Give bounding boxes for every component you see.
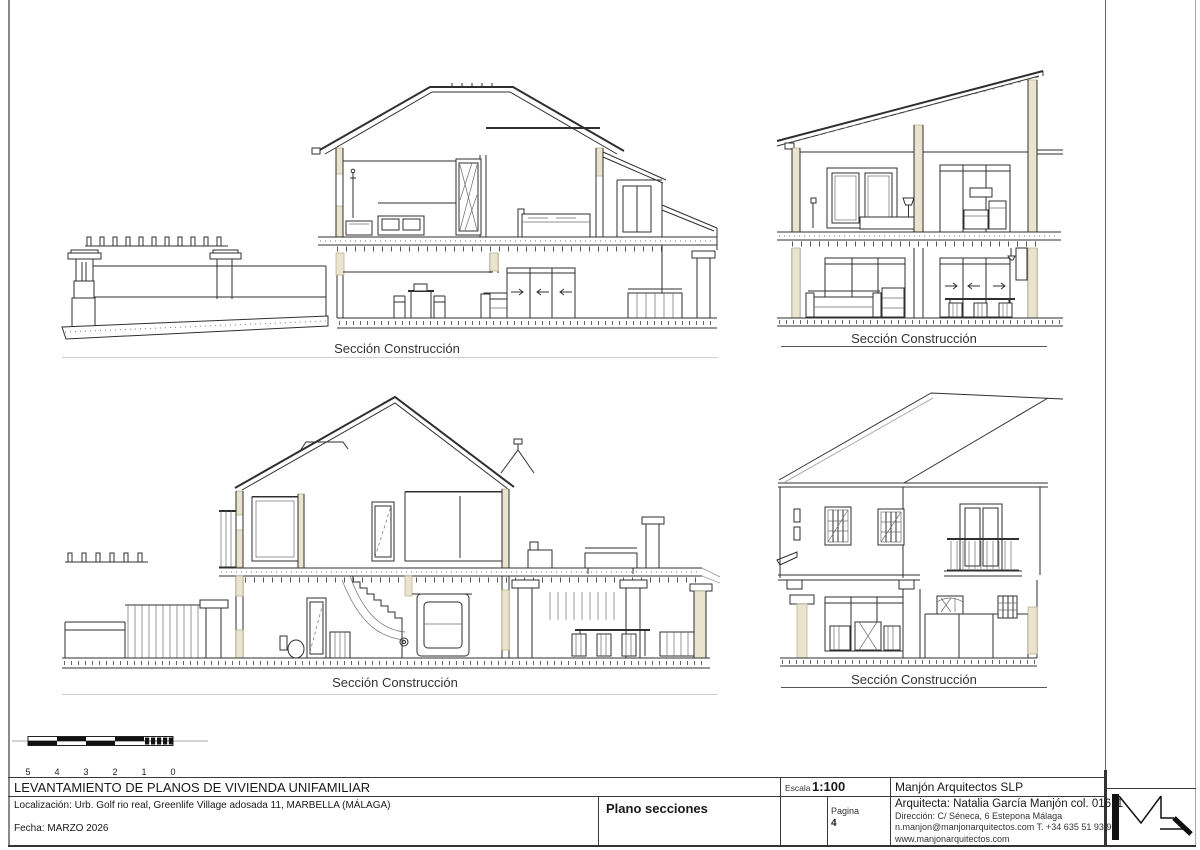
scale-number-2: 2 xyxy=(112,767,117,777)
titleblock-top-line xyxy=(8,777,1105,778)
section-bottom-right-linework xyxy=(775,390,1065,700)
address-text: Dirección: C/ Séneca, 6 Estepona Málaga xyxy=(895,811,1062,821)
section-drawing-bottom-right xyxy=(775,390,1065,700)
sheet-name: Plano secciones xyxy=(606,801,708,816)
frame-left-border xyxy=(8,0,10,847)
scale-number-5: 5 xyxy=(25,767,30,777)
section-top-left-linework xyxy=(60,60,720,360)
m-zigzag-logo-icon xyxy=(1105,785,1197,845)
titleblock-vline-3 xyxy=(827,796,828,845)
divider-top-left xyxy=(62,357,718,358)
scale-number-4: 4 xyxy=(54,767,59,777)
section-bottom-left-linework xyxy=(60,390,720,700)
website-text: www.manjonarquitectos.com xyxy=(895,834,1010,844)
titleblock-vline-1 xyxy=(598,796,599,845)
titleblock-mid-line xyxy=(8,796,1105,797)
architect-text: Arquitecta: Natalia García Manjón col. 0… xyxy=(895,798,1123,810)
section-label-bottom-right: Sección Construcción xyxy=(851,672,977,687)
section-top-right-linework xyxy=(775,60,1065,360)
section-drawing-top-left xyxy=(60,60,720,360)
titleblock-vline-4 xyxy=(890,777,891,845)
firm-logo xyxy=(1105,785,1197,845)
section-label-top-left: Sección Construcción xyxy=(334,341,460,356)
scale-label: Escala xyxy=(785,783,811,793)
drawing-sheet: Sección Construcción Sección Construcció… xyxy=(0,0,1200,850)
section-label-bottom-left: Sección Construcción xyxy=(332,675,458,690)
scale-number-3: 3 xyxy=(83,767,88,777)
frame-bottom-border xyxy=(8,845,1196,847)
frame-divider-vertical xyxy=(1105,0,1106,847)
date-text: Fecha: MARZO 2026 xyxy=(14,823,108,834)
section-drawing-top-right xyxy=(775,60,1065,360)
scale-bar-graphic xyxy=(10,727,210,749)
project-title: LEVANTAMIENTO DE PLANOS DE VIVIENDA UNIF… xyxy=(14,780,370,795)
contact-text: n.manjon@manjonarquitectos.com T. +34 63… xyxy=(895,822,1116,832)
section-drawing-bottom-left xyxy=(60,390,720,700)
scale-number-1: 1 xyxy=(141,767,146,777)
location-text: Localización: Urb. Golf rio real, Greenl… xyxy=(14,800,390,811)
scale-value: 1:100 xyxy=(812,779,845,794)
scale-bar: 5 4 3 2 1 0 xyxy=(10,727,210,761)
firm-name: Manjón Arquitectos SLP xyxy=(895,780,1023,794)
section-label-top-right: Sección Construcción xyxy=(851,331,977,346)
titleblock-vline-2 xyxy=(780,777,781,845)
page-number: 4 xyxy=(831,818,837,829)
frame-right-border xyxy=(1195,0,1196,847)
divider-top-right xyxy=(781,346,1047,347)
divider-bottom-right xyxy=(781,687,1047,688)
page-label: Pagina xyxy=(831,806,859,816)
scale-number-0: 0 xyxy=(170,767,175,777)
divider-bottom-left xyxy=(62,694,718,695)
